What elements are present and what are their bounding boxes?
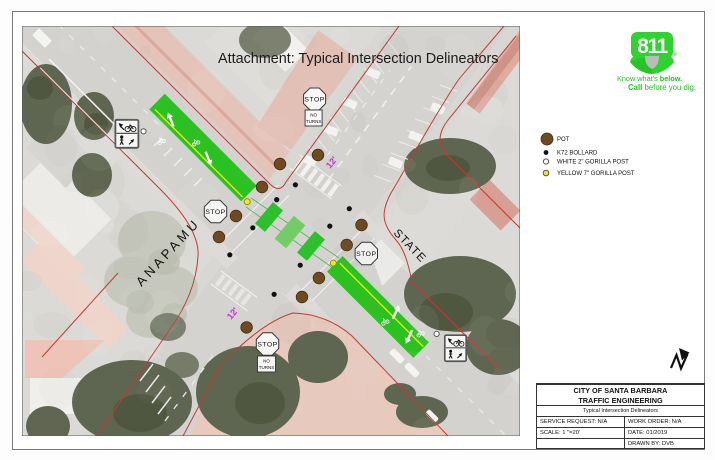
svg-text:811: 811 — [637, 35, 668, 58]
svg-text:NO: NO — [263, 359, 270, 364]
svg-text:WHITE 2" GORILLA POST: WHITE 2" GORILLA POST — [557, 160, 629, 166]
svg-text:K72 BOLLARD: K72 BOLLARD — [557, 151, 598, 157]
svg-text:STOP: STOP — [304, 96, 324, 103]
svg-text:TURNS: TURNS — [259, 365, 275, 370]
svg-text:STOP: STOP — [205, 209, 225, 216]
svg-text:STOP: STOP — [257, 341, 277, 348]
svg-text:POT: POT — [557, 137, 570, 143]
svg-text:TURNS: TURNS — [306, 119, 322, 124]
svg-text:NO: NO — [310, 113, 317, 118]
svg-text:YELLOW 7" GORILLA POST: YELLOW 7" GORILLA POST — [557, 171, 635, 177]
